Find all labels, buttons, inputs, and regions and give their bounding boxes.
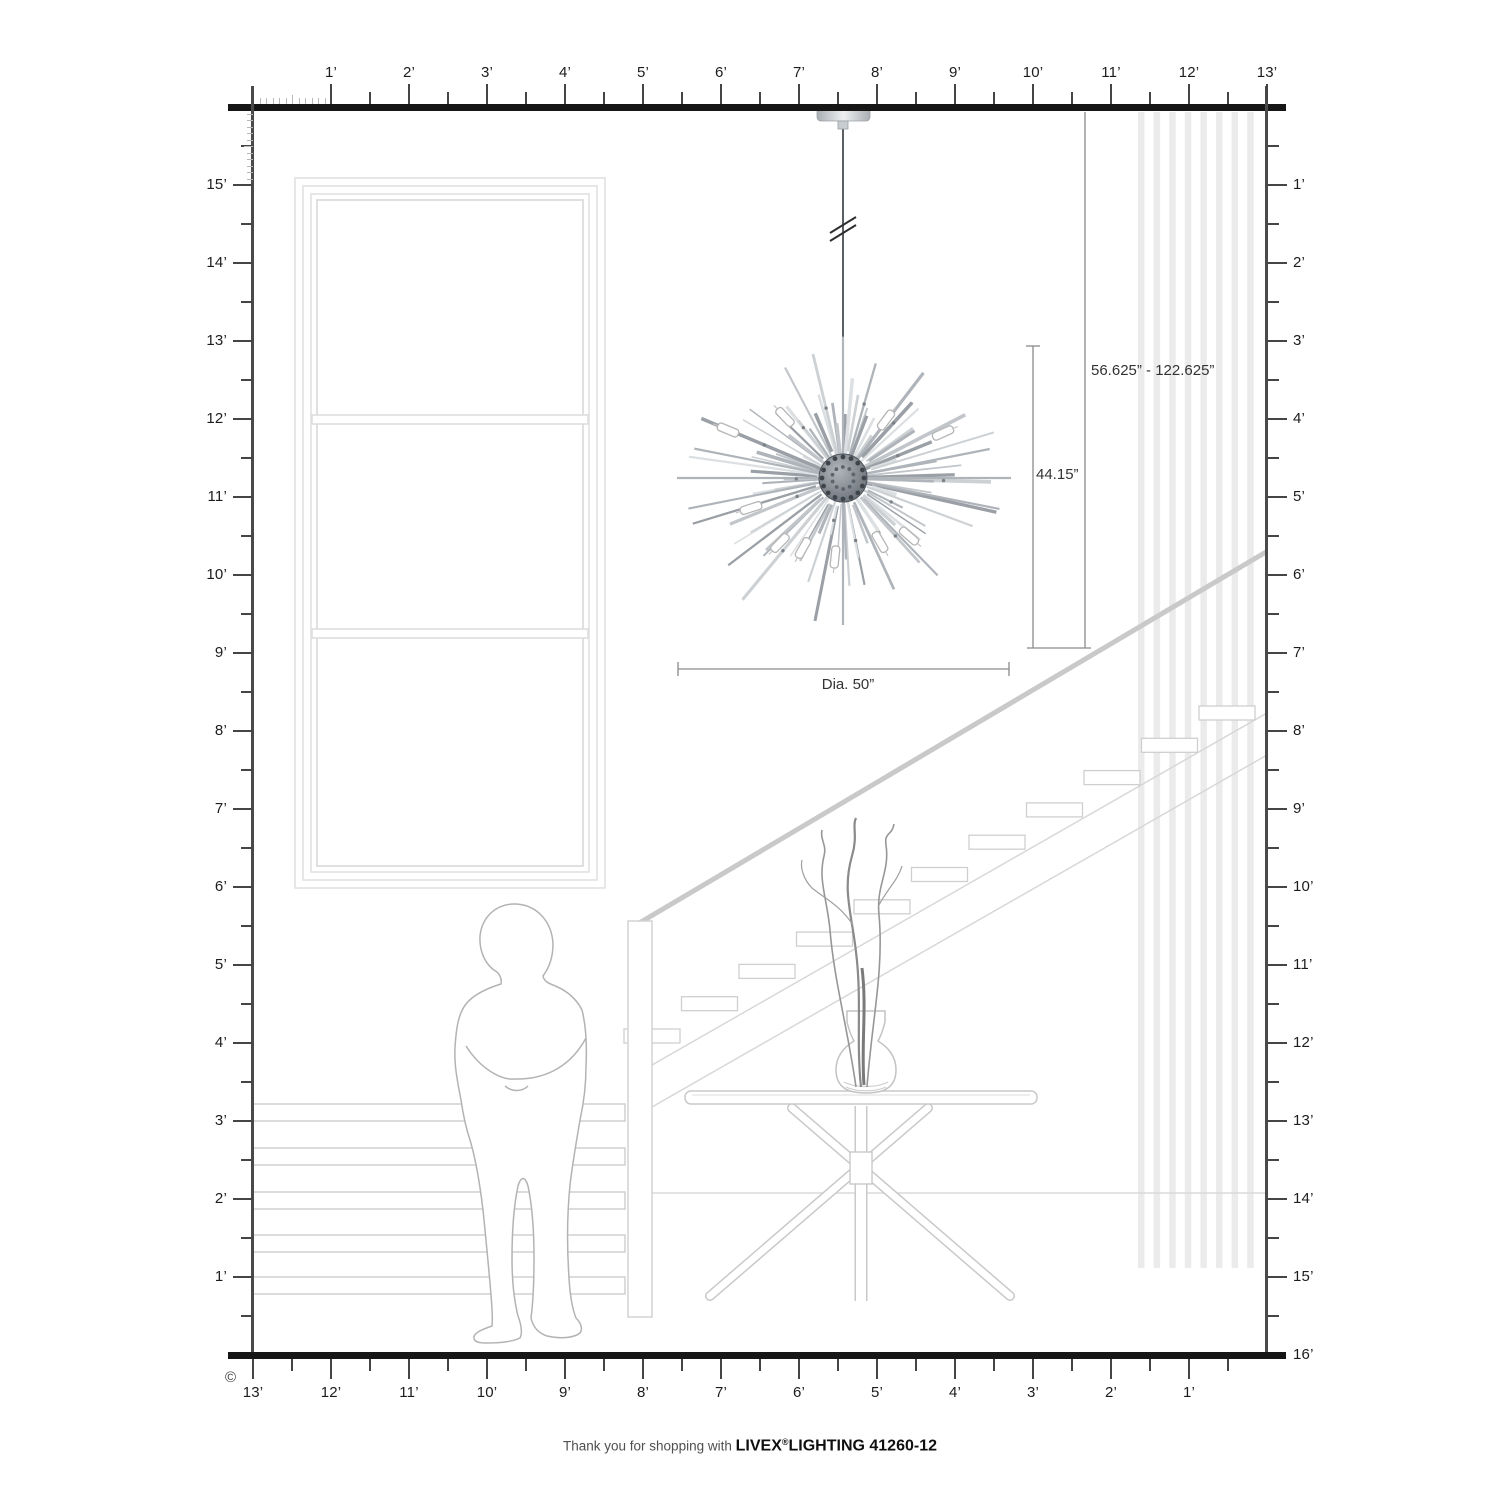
left-ruler-label: 15’: [185, 176, 227, 193]
ruler-tick: [993, 92, 995, 104]
left-ruler-label: 2’: [185, 1190, 227, 1207]
ruler-tick: [1267, 574, 1287, 576]
ruler-tick: [233, 1042, 253, 1044]
ruler-tick: [1267, 730, 1287, 732]
copyright-symbol: ©: [225, 1369, 236, 1386]
left-ruler-label: 9’: [185, 644, 227, 661]
ruler-tick: [325, 98, 326, 104]
right-ruler-label: 16’: [1293, 1346, 1335, 1363]
ruler-tick: [954, 1359, 956, 1379]
ruler-tick: [1267, 418, 1287, 420]
ruler-tick: [642, 84, 644, 104]
ruler-tick: [837, 1359, 839, 1371]
ruler-tick: [798, 1359, 800, 1379]
ruler-tick: [286, 98, 287, 104]
ruler-tick: [876, 84, 878, 104]
ruler-tick: [241, 1315, 253, 1317]
ruler-tick: [247, 153, 253, 154]
ruler-tick: [1267, 886, 1287, 888]
ruler-tick: [1149, 1359, 1151, 1371]
brand-name: LIVEX: [736, 1438, 782, 1455]
bottom-ruler-label: 9’: [545, 1384, 585, 1401]
ruler-tick: [798, 84, 800, 104]
right-ruler-label: 14’: [1293, 1190, 1335, 1207]
ruler-tick: [954, 84, 956, 104]
left-ruler-line: [251, 86, 254, 1352]
ruler-tick: [233, 964, 253, 966]
diameter-label: Dia. 50”: [783, 676, 913, 693]
ruler-tick: [1267, 808, 1287, 810]
left-ruler-label: 12’: [185, 410, 227, 427]
bottom-ruler-label: 3’: [1013, 1384, 1053, 1401]
ruler-tick: [1267, 1042, 1287, 1044]
top-ruler-label: 3’: [467, 64, 507, 81]
ruler-tick: [447, 92, 449, 104]
ruler-tick: [486, 84, 488, 104]
ruler-tick: [1267, 496, 1287, 498]
ruler-tick: [299, 98, 300, 104]
footer-prefix: Thank you for shopping with: [563, 1439, 732, 1454]
right-ruler-label: 5’: [1293, 488, 1335, 505]
ruler-tick: [241, 1159, 253, 1161]
ruler-tick: [1267, 535, 1279, 537]
ruler-tick: [330, 84, 332, 104]
ruler-tick: [241, 1081, 253, 1083]
bottom-ruler-label: 13’: [233, 1384, 273, 1401]
ruler-tick: [292, 95, 293, 104]
ruler-tick: [1267, 262, 1287, 264]
ruler-tick: [1267, 1276, 1287, 1278]
top-ruler-label: 5’: [623, 64, 663, 81]
ruler-tick: [1267, 1003, 1279, 1005]
ruler-tick: [233, 262, 253, 264]
ruler-tick: [642, 1359, 644, 1379]
right-ruler-label: 4’: [1293, 410, 1335, 427]
chandelier: [677, 108, 1011, 625]
ruler-tick: [241, 691, 253, 693]
ruler-tick: [233, 340, 253, 342]
top-ruler-label: 11’: [1091, 64, 1131, 81]
ruler-tick: [247, 114, 253, 115]
ruler-tick: [1267, 925, 1279, 927]
right-ruler-label: 15’: [1293, 1268, 1335, 1285]
ruler-tick: [233, 418, 253, 420]
left-ruler-label: 3’: [185, 1112, 227, 1129]
ruler-tick: [720, 1359, 722, 1379]
ruler-tick: [1071, 1359, 1073, 1371]
right-ruler-label: 1’: [1293, 176, 1335, 193]
ruler-tick: [241, 301, 253, 303]
top-ruler-bar: [228, 104, 1286, 111]
ruler-tick: [252, 1359, 254, 1379]
ruler-tick: [1267, 184, 1287, 186]
ruler-tick: [1110, 1359, 1112, 1379]
ruler-tick: [312, 98, 313, 104]
ruler-tick: [1267, 1315, 1279, 1317]
bottom-ruler-label: 1’: [1169, 1384, 1209, 1401]
ruler-tick: [915, 92, 917, 104]
ruler-tick: [233, 652, 253, 654]
ruler-tick: [915, 1359, 917, 1371]
ruler-tick: [564, 84, 566, 104]
ruler-tick: [408, 84, 410, 104]
ruler-tick: [241, 613, 253, 615]
ruler-tick: [681, 92, 683, 104]
ruler-tick: [247, 179, 253, 180]
top-ruler-label: 2’: [389, 64, 429, 81]
canopy-collar: [838, 121, 848, 129]
ruler-tick: [759, 1359, 761, 1371]
bottom-ruler-label: 11’: [389, 1384, 429, 1401]
left-ruler-label: 8’: [185, 722, 227, 739]
ruler-tick: [247, 120, 253, 121]
ruler-tick: [1267, 301, 1279, 303]
bottom-ruler-bar: [228, 1352, 1286, 1359]
ruler-tick: [291, 1359, 293, 1371]
ruler-tick: [486, 1359, 488, 1379]
ruler-tick: [1267, 652, 1287, 654]
ruler-tick: [241, 535, 253, 537]
ruler-tick: [759, 92, 761, 104]
right-ruler-label: 6’: [1293, 566, 1335, 583]
bottom-ruler-label: 4’: [935, 1384, 975, 1401]
top-ruler-label: 1’: [311, 64, 351, 81]
ruler-tick: [241, 1003, 253, 1005]
left-ruler-label: 7’: [185, 800, 227, 817]
ruler-tick: [1149, 92, 1151, 104]
ruler-tick: [603, 1359, 605, 1371]
ruler-tick: [1267, 379, 1279, 381]
ruler-tick: [273, 98, 274, 104]
ruler-tick: [1227, 1359, 1229, 1371]
window: [295, 178, 605, 888]
right-ruler-label: 8’: [1293, 722, 1335, 739]
ruler-tick: [260, 98, 261, 104]
ruler-tick: [447, 1359, 449, 1371]
right-ruler-label: 11’: [1293, 956, 1335, 973]
right-ruler-line: [1265, 86, 1268, 1352]
ruler-tick: [1267, 1120, 1287, 1122]
ruler-tick: [318, 98, 319, 104]
ruler-tick: [1267, 145, 1279, 147]
ruler-tick: [1032, 84, 1034, 104]
ruler-tick: [241, 457, 253, 459]
ruler-tick: [720, 84, 722, 104]
bottom-ruler-label: 7’: [701, 1384, 741, 1401]
left-ruler-label: 4’: [185, 1034, 227, 1051]
ruler-tick: [1032, 1359, 1034, 1379]
bottom-ruler-label: 12’: [311, 1384, 351, 1401]
ruler-tick: [233, 496, 253, 498]
registered-mark: ®: [782, 1437, 789, 1447]
ruler-tick: [247, 166, 253, 167]
left-ruler-label: 14’: [185, 254, 227, 271]
ruler-tick: [266, 98, 267, 104]
ruler-tick: [876, 1359, 878, 1379]
model-number: LIGHTING 41260-12: [789, 1438, 938, 1455]
footer-text: Thank you for shopping with LIVEX®LIGHTI…: [0, 1437, 1500, 1456]
ruler-tick: [1267, 1198, 1287, 1200]
dining-table: [685, 1091, 1037, 1301]
ruler-tick: [233, 184, 253, 186]
ruler-tick: [241, 769, 253, 771]
ruler-tick: [233, 1198, 253, 1200]
ruler-tick: [1110, 84, 1112, 104]
ruler-tick: [1266, 84, 1268, 104]
newel-post: [628, 921, 652, 1317]
left-ruler-label: 10’: [185, 566, 227, 583]
top-ruler-label: 8’: [857, 64, 897, 81]
ruler-tick: [369, 1359, 371, 1371]
ruler-tick: [1267, 340, 1287, 342]
table-leg-hub: [850, 1152, 872, 1184]
ruler-tick: [233, 886, 253, 888]
ruler-tick: [247, 172, 253, 173]
ruler-tick: [525, 92, 527, 104]
ruler-tick: [241, 847, 253, 849]
ruler-tick: [1267, 223, 1279, 225]
ruler-tick: [247, 140, 253, 141]
right-ruler-label: 12’: [1293, 1034, 1335, 1051]
ruler-tick: [279, 98, 280, 104]
ruler-tick: [837, 92, 839, 104]
ruler-tick: [241, 1237, 253, 1239]
top-ruler-label: 9’: [935, 64, 975, 81]
ruler-tick: [1267, 964, 1287, 966]
ruler-tick: [241, 925, 253, 927]
top-ruler-label: 10’: [1013, 64, 1053, 81]
ruler-tick: [241, 379, 253, 381]
top-ruler-label: 4’: [545, 64, 585, 81]
bottom-ruler-label: 6’: [779, 1384, 819, 1401]
ruler-tick: [1267, 691, 1279, 693]
right-ruler-label: 3’: [1293, 332, 1335, 349]
ruler-tick: [564, 1359, 566, 1379]
dimension-lines: [678, 112, 1091, 676]
ruler-tick: [525, 1359, 527, 1371]
ruler-tick: [1267, 847, 1279, 849]
stair-balusters: [1138, 112, 1254, 1268]
bottom-ruler-label: 10’: [467, 1384, 507, 1401]
ruler-tick: [247, 127, 253, 128]
ruler-tick: [233, 808, 253, 810]
top-ruler-label: 13’: [1247, 64, 1287, 81]
ruler-tick: [305, 98, 306, 104]
left-ruler-label: 1’: [185, 1268, 227, 1285]
ruler-tick: [1267, 1081, 1279, 1083]
ruler-tick: [330, 1359, 332, 1379]
ruler-tick: [241, 223, 253, 225]
ruler-tick: [247, 159, 253, 160]
product-spec-sheet: 1’2’3’4’5’6’7’8’9’10’11’12’13’13’12’11’1…: [0, 0, 1500, 1500]
bottom-ruler-label: 8’: [623, 1384, 663, 1401]
bottom-ruler-label: 5’: [857, 1384, 897, 1401]
ruler-tick: [603, 92, 605, 104]
top-ruler-label: 6’: [701, 64, 741, 81]
ruler-tick: [1188, 1359, 1190, 1379]
top-ruler-label: 7’: [779, 64, 819, 81]
left-ruler-label: 6’: [185, 878, 227, 895]
ruler-tick: [1227, 92, 1229, 104]
ruler-tick: [1267, 457, 1279, 459]
left-ruler-label: 11’: [185, 488, 227, 505]
ruler-tick: [233, 1276, 253, 1278]
ruler-tick: [1267, 769, 1279, 771]
bottom-ruler-label: 2’: [1091, 1384, 1131, 1401]
top-ruler-label: 12’: [1169, 64, 1209, 81]
ruler-tick: [681, 1359, 683, 1371]
ruler-tick: [1267, 1159, 1279, 1161]
right-ruler-label: 10’: [1293, 878, 1335, 895]
ruler-tick: [244, 146, 253, 147]
left-ruler-label: 13’: [185, 332, 227, 349]
ruler-tick: [993, 1359, 995, 1371]
hang-range-label: 56.625” - 122.625”: [1091, 362, 1214, 379]
right-ruler-label: 9’: [1293, 800, 1335, 817]
right-ruler-label: 2’: [1293, 254, 1335, 271]
ruler-tick: [369, 92, 371, 104]
right-ruler-label: 13’: [1293, 1112, 1335, 1129]
body-height-label: 44.15”: [1036, 466, 1079, 483]
ruler-tick: [233, 1120, 253, 1122]
ruler-tick: [1071, 92, 1073, 104]
center-sphere: [819, 454, 867, 502]
ruler-tick: [233, 730, 253, 732]
ruler-tick: [1267, 613, 1279, 615]
right-ruler-label: 7’: [1293, 644, 1335, 661]
ruler-tick: [408, 1359, 410, 1379]
left-ruler-label: 5’: [185, 956, 227, 973]
ruler-tick: [247, 133, 253, 134]
ruler-tick: [1188, 84, 1190, 104]
ruler-tick: [233, 574, 253, 576]
ruler-tick: [1267, 1237, 1279, 1239]
